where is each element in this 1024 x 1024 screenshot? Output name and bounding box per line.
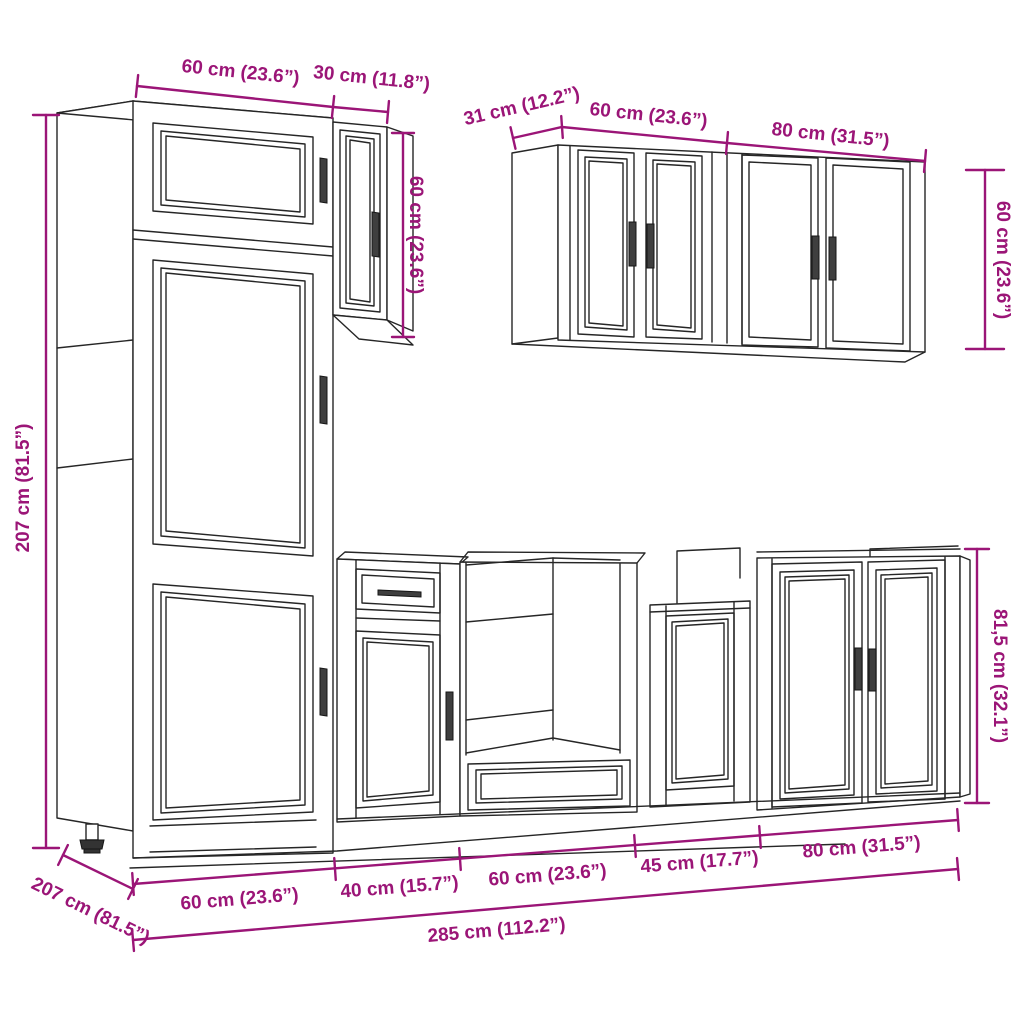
- base45-front: [650, 601, 750, 807]
- dim-label-wall-small-height: 60 cm (23.6”): [405, 176, 426, 294]
- door-handle: [855, 648, 862, 690]
- door-handle: [647, 224, 654, 268]
- door-handle: [812, 236, 819, 279]
- dim-label-base-height: 81,5 cm (32.1”): [989, 609, 1010, 743]
- dim-label-wall-60-width: 60 cm (23.6”): [589, 99, 709, 132]
- dim-base-height: 81,5 cm (32.1”): [965, 549, 1010, 803]
- oven-cabinet-front: [460, 562, 637, 816]
- tall-cabinet-front: [133, 101, 333, 858]
- wall-cabinet-small: [333, 122, 413, 345]
- door-handle: [446, 692, 453, 740]
- dim-label-total-width: 285 cm (112.2”): [427, 914, 567, 947]
- adjustable-foot: [80, 824, 104, 853]
- base-cabinet-40: [337, 552, 468, 822]
- dim-label-base-40: 40 cm (15.7”): [340, 872, 460, 902]
- dim-floor-depth: 207 cm (81.5”): [28, 845, 153, 949]
- wall-set-side-panel: [512, 145, 558, 344]
- base-cabinet-80: [757, 549, 970, 810]
- base-cabinet-45: [650, 601, 750, 807]
- door-handle: [629, 222, 636, 266]
- dim-label-base-80: 80 cm (31.5”): [802, 832, 922, 862]
- dim-label-wall-80-width: 80 cm (31.5”): [771, 119, 891, 152]
- door-handle: [320, 158, 327, 203]
- door-handle: [320, 668, 327, 716]
- kitchen-cabinet-dimension-diagram: 60 cm (23.6”) 30 cm (11.8”) 60 cm (23.6”…: [0, 0, 1024, 1024]
- diagram-canvas: 60 cm (23.6”) 30 cm (11.8”) 60 cm (23.6”…: [0, 0, 1024, 1024]
- door-handle: [320, 376, 327, 424]
- dim-tall-height: 207 cm (81.5”): [13, 115, 59, 848]
- base-cabinet-oven-60: [460, 552, 645, 816]
- dim-label-base-45: 45 cm (17.7”): [640, 847, 760, 877]
- wall-cabinet-set: [512, 145, 925, 362]
- door-handle: [869, 649, 876, 691]
- base80-side: [960, 556, 970, 797]
- door-handle: [372, 212, 379, 257]
- dim-label-wall-small-width: 30 cm (11.8”): [312, 62, 431, 95]
- dim-label-base-60-left: 60 cm (23.6”): [180, 884, 300, 914]
- tall-cabinet: [57, 101, 333, 858]
- dim-label-wall-depth: 31 cm (12.2”): [462, 83, 582, 130]
- door-handle: [829, 237, 836, 280]
- dim-label-wall-height: 60 cm (23.6”): [992, 201, 1013, 319]
- dim-label-base-60-mid: 60 cm (23.6”): [488, 860, 608, 890]
- back-panel: [677, 548, 740, 603]
- dim-label-tall-height: 207 cm (81.5”): [13, 424, 34, 553]
- dim-wall-height: 60 cm (23.6”): [966, 170, 1013, 349]
- dim-label-tall-width: 60 cm (23.6”): [181, 56, 301, 89]
